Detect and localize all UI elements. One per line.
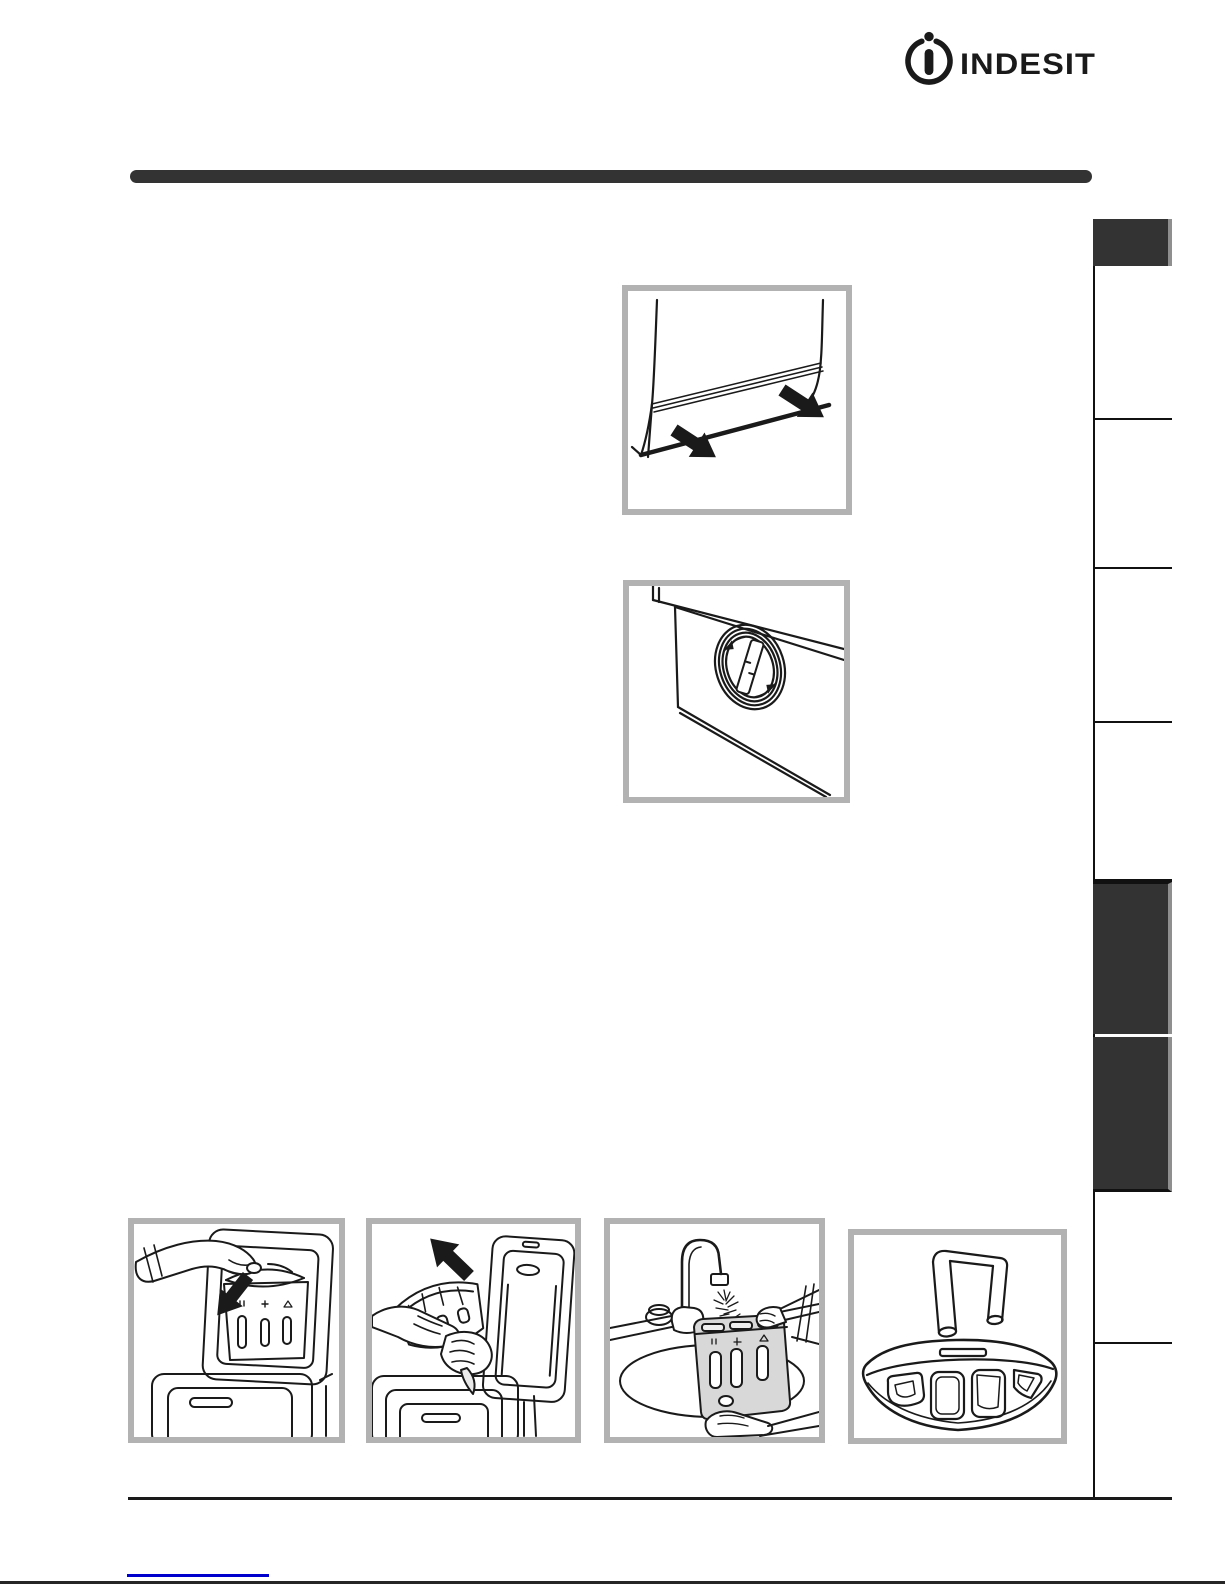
highlighted-section-tab-1 <box>1093 882 1172 1034</box>
sidebar-divider <box>1093 1342 1172 1344</box>
lift-out-arrow-icon <box>419 1227 480 1288</box>
drawer-button-press-figure <box>128 1218 345 1443</box>
page-bottom-edge <box>0 1581 1225 1584</box>
sidebar-divider <box>1093 567 1172 569</box>
pull-out-arrow-icon <box>666 378 832 470</box>
indesit-logo-text: INDESIT <box>960 48 1096 81</box>
drawer-removal-figure <box>366 1218 581 1443</box>
sidebar-divider <box>1093 721 1172 723</box>
indesit-logo: INDESIT <box>903 28 1103 90</box>
press-direction-arrow-icon <box>206 1267 260 1324</box>
drawer-rinsing-figure <box>604 1218 825 1443</box>
sidebar-divider <box>1093 418 1172 420</box>
siphon-parts-figure <box>848 1229 1067 1444</box>
pump-cover-figure <box>623 580 850 803</box>
manual-page: INDESIT <box>0 0 1225 1585</box>
highlighted-section-tab-2 <box>1093 1037 1172 1192</box>
indesit-circle-i-icon: INDESIT <box>903 28 1103 90</box>
kick-strip-removal-figure <box>622 285 852 515</box>
footer-rule <box>128 1497 1172 1500</box>
footer-link[interactable] <box>127 1574 269 1577</box>
language-section-tab <box>1093 219 1172 266</box>
header-rule <box>130 170 1092 183</box>
